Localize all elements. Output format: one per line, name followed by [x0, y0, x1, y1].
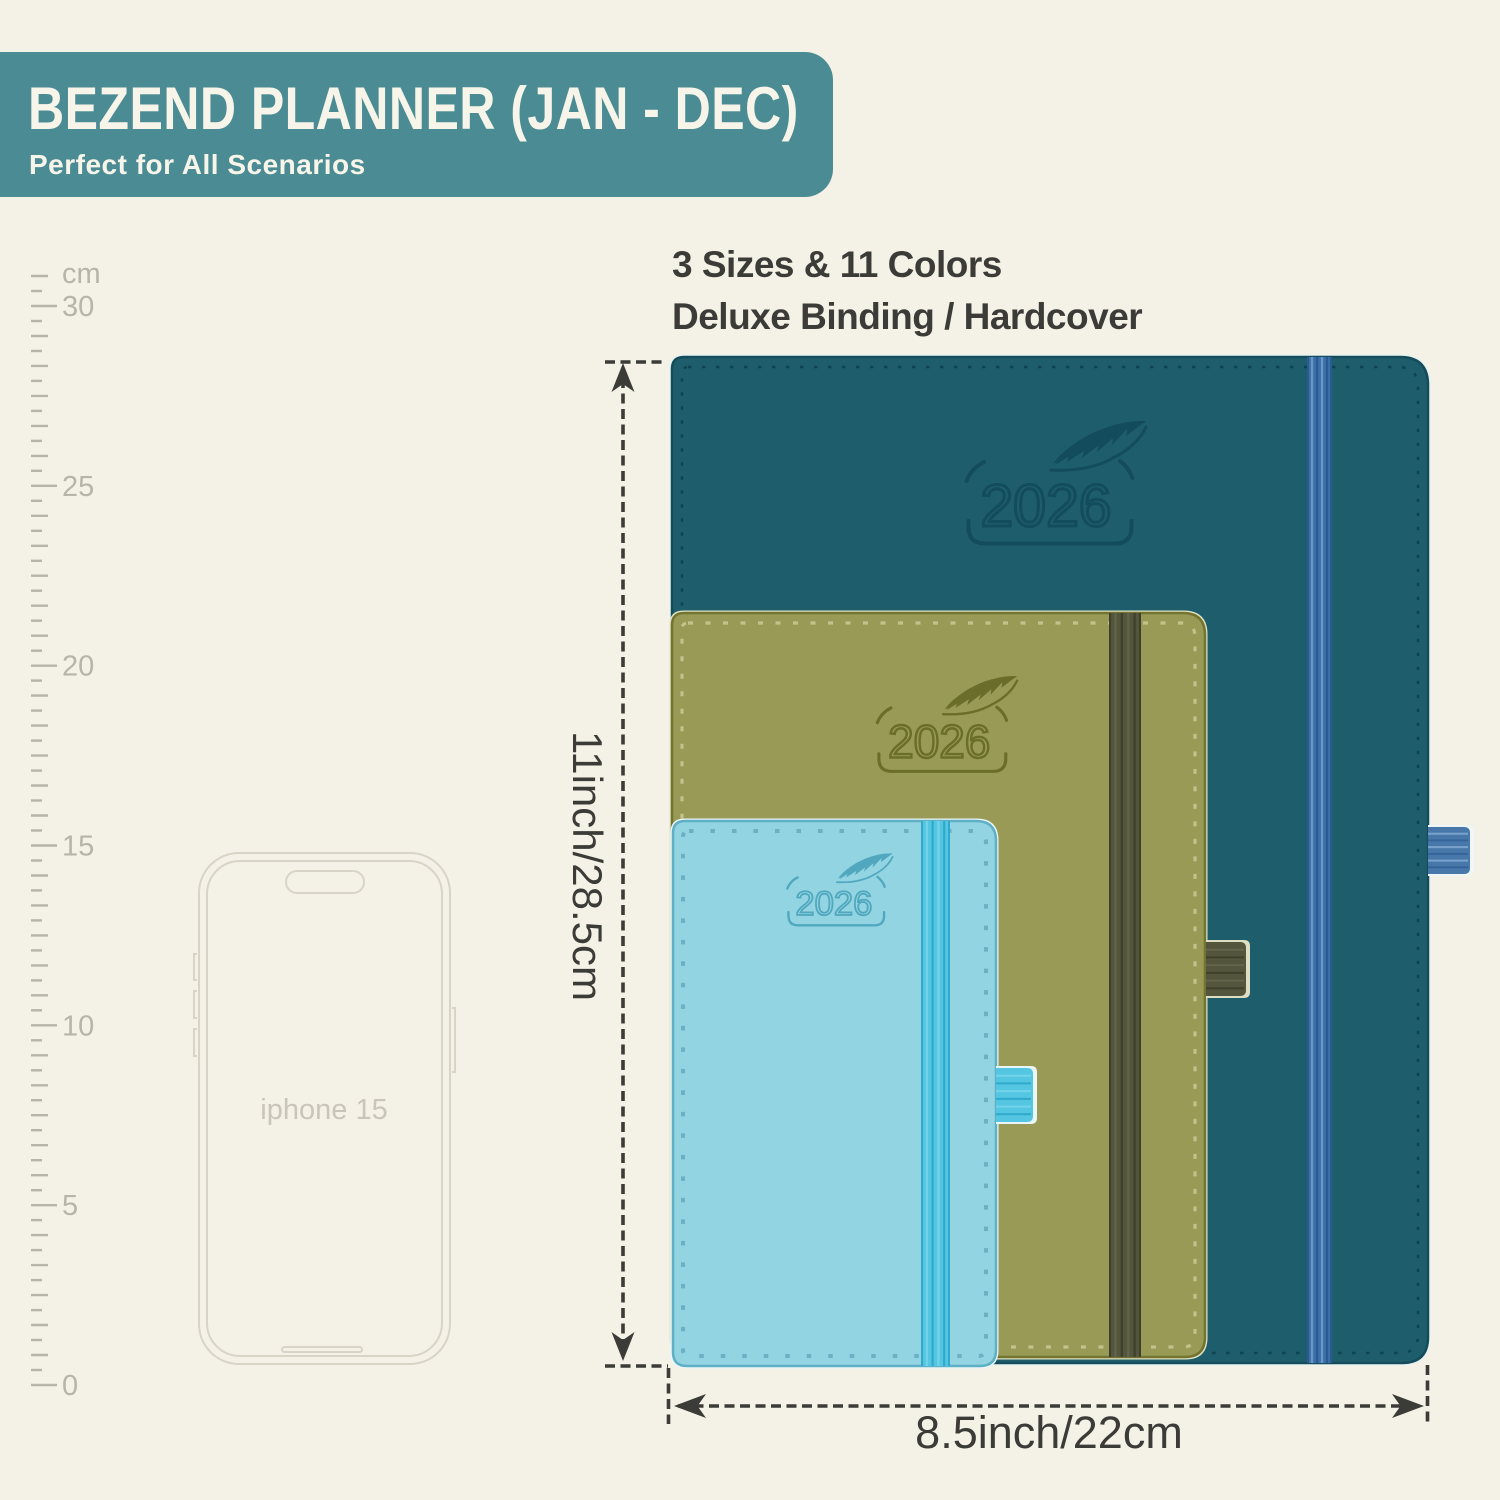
- svg-text:25: 25: [62, 471, 94, 503]
- svg-text:0: 0: [62, 1370, 78, 1402]
- svg-text:cm: cm: [62, 258, 101, 290]
- svg-text:iphone 15: iphone 15: [260, 1094, 387, 1126]
- svg-text:20: 20: [62, 651, 94, 683]
- svg-text:5: 5: [62, 1190, 78, 1222]
- svg-text:15: 15: [62, 831, 94, 863]
- svg-text:8.5inch/22cm: 8.5inch/22cm: [915, 1407, 1183, 1458]
- svg-text:11inch/28.5cm: 11inch/28.5cm: [564, 731, 611, 1001]
- svg-text:30: 30: [62, 291, 94, 323]
- svg-text:10: 10: [62, 1010, 94, 1042]
